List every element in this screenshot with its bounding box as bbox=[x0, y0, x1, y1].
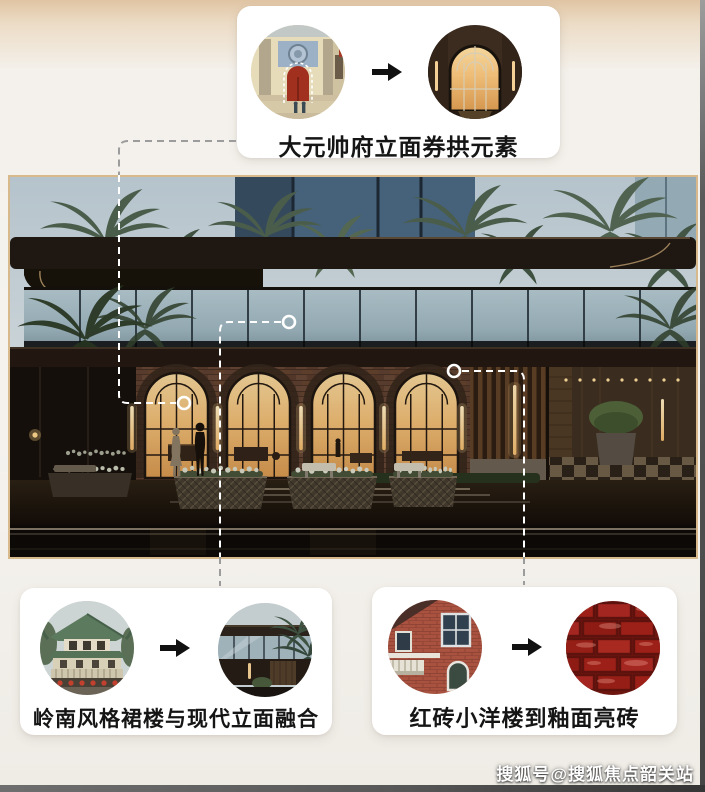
callout-label-top: 大元帅府立面券拱元素 bbox=[237, 128, 560, 162]
callout-label-bottom-right: 红砖小洋楼到釉面亮砖 bbox=[372, 701, 677, 733]
right-arrow-icon bbox=[160, 637, 190, 659]
callout-card-bottom-right: 红砖小洋楼到釉面亮砖 bbox=[372, 587, 677, 735]
screenshot-right-edge bbox=[700, 0, 705, 792]
red-brick-house-photo bbox=[388, 600, 482, 694]
callout-label-bottom-left: 岭南风格裙楼与现代立面融合 bbox=[20, 703, 332, 733]
lingnan-building-photo bbox=[40, 601, 134, 695]
watermark-text: 搜狐号@搜狐焦点韶关站 bbox=[496, 760, 694, 785]
screenshot-bottom-edge bbox=[0, 785, 705, 792]
building-render-image bbox=[10, 177, 696, 557]
callout-card-bottom-left: 岭南风格裙楼与现代立面融合 bbox=[20, 588, 332, 735]
modern-arch-doorway-photo bbox=[428, 25, 522, 119]
modern-podium-photo bbox=[218, 603, 312, 697]
glazed-red-brick-photo bbox=[566, 601, 660, 695]
historic-mansion-arch-photo bbox=[251, 25, 345, 119]
right-arrow-icon bbox=[372, 61, 402, 83]
building-render-photo bbox=[8, 175, 698, 559]
right-arrow-icon bbox=[512, 636, 542, 658]
callout-card-top: 大元帅府立面券拱元素 bbox=[237, 6, 560, 158]
infographic-page: 大元帅府立面券拱元素 bbox=[0, 0, 705, 792]
